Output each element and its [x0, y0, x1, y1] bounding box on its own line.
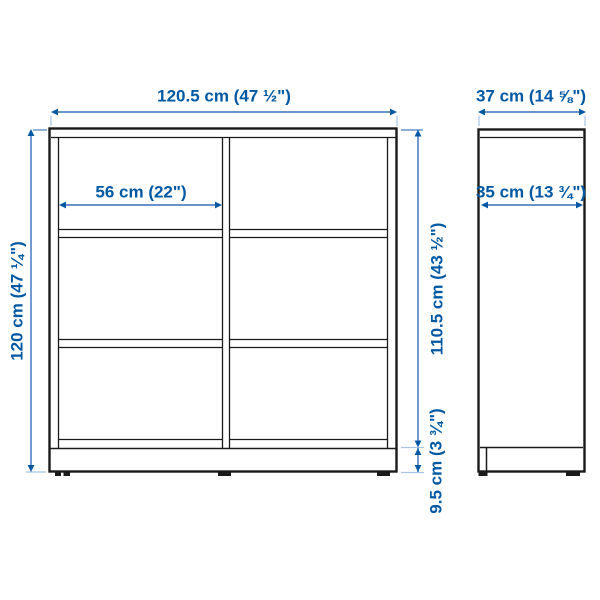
arrow-down-icon [415, 441, 422, 448]
dim-label-overall-height: 120 cm (47 ¼") [9, 241, 26, 361]
arrow-down-icon [415, 465, 422, 472]
arrow-right-icon [579, 109, 586, 116]
dimension-diagram: 120.5 cm (47 ½") 37 cm (14 ⅝") 56 cm (22… [0, 0, 600, 600]
dim-label-overall-depth: 37 cm (14 ⅝") [476, 88, 586, 105]
dim-label-overall-width: 120.5 cm (47 ½") [157, 88, 291, 105]
dim-label-base-height: 9.5 cm (3 ¾") [428, 408, 445, 513]
foot [218, 472, 231, 477]
foot [64, 472, 71, 477]
foot [566, 472, 580, 477]
foot [377, 472, 390, 477]
arrow-right-icon [390, 109, 397, 116]
dim-label-inner-depth: 35 cm (13 ¾") [476, 184, 586, 201]
foot [479, 472, 488, 477]
arrow-down-icon [28, 465, 35, 472]
side-outer-frame [479, 130, 585, 472]
arrow-up-icon [415, 448, 422, 455]
dim-label-inner-height: 110.5 cm (43 ½") [429, 223, 446, 356]
foot [55, 472, 61, 477]
dim-label-inner-width: 56 cm (22") [95, 184, 186, 201]
side-view [479, 130, 585, 477]
arrow-left-icon [478, 109, 485, 116]
arrow-left-icon [51, 109, 58, 116]
front-view [49, 129, 397, 477]
